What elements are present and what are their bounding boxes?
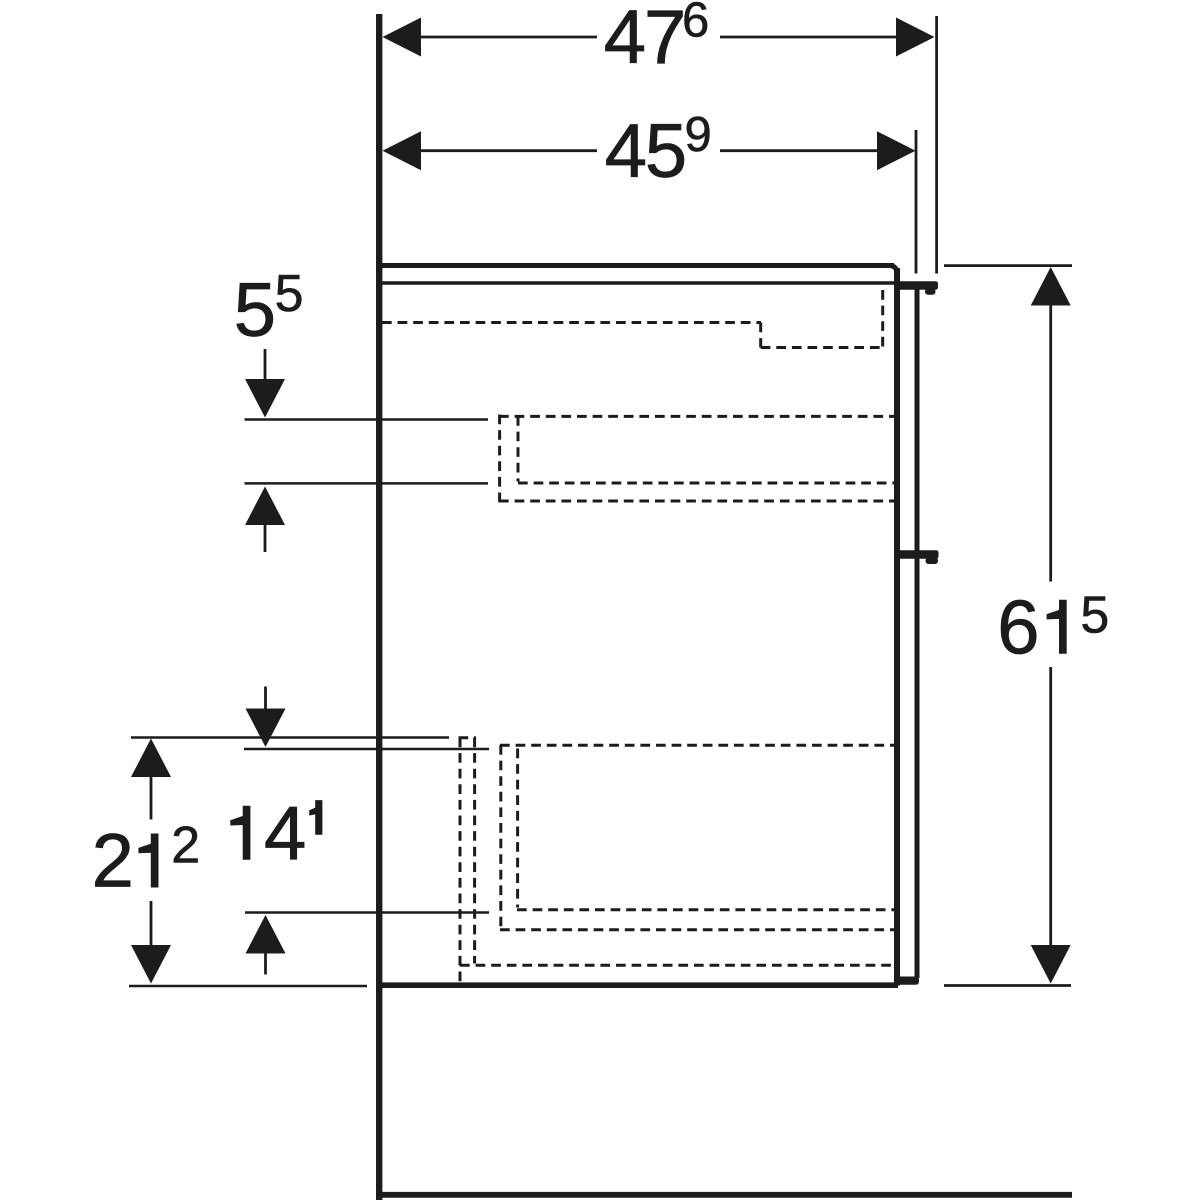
svg-text:5: 5	[234, 268, 276, 353]
svg-text:6: 6	[997, 586, 1039, 671]
svg-text:5: 5	[1080, 587, 1109, 645]
svg-text:9: 9	[685, 108, 712, 162]
svg-text:5: 5	[275, 265, 304, 323]
svg-text:47: 47	[604, 0, 684, 80]
svg-text:6: 6	[682, 0, 709, 47]
svg-text:2: 2	[171, 816, 200, 874]
svg-text:45: 45	[605, 109, 685, 194]
svg-text:2: 2	[92, 819, 134, 904]
svg-text:4: 4	[264, 791, 306, 876]
